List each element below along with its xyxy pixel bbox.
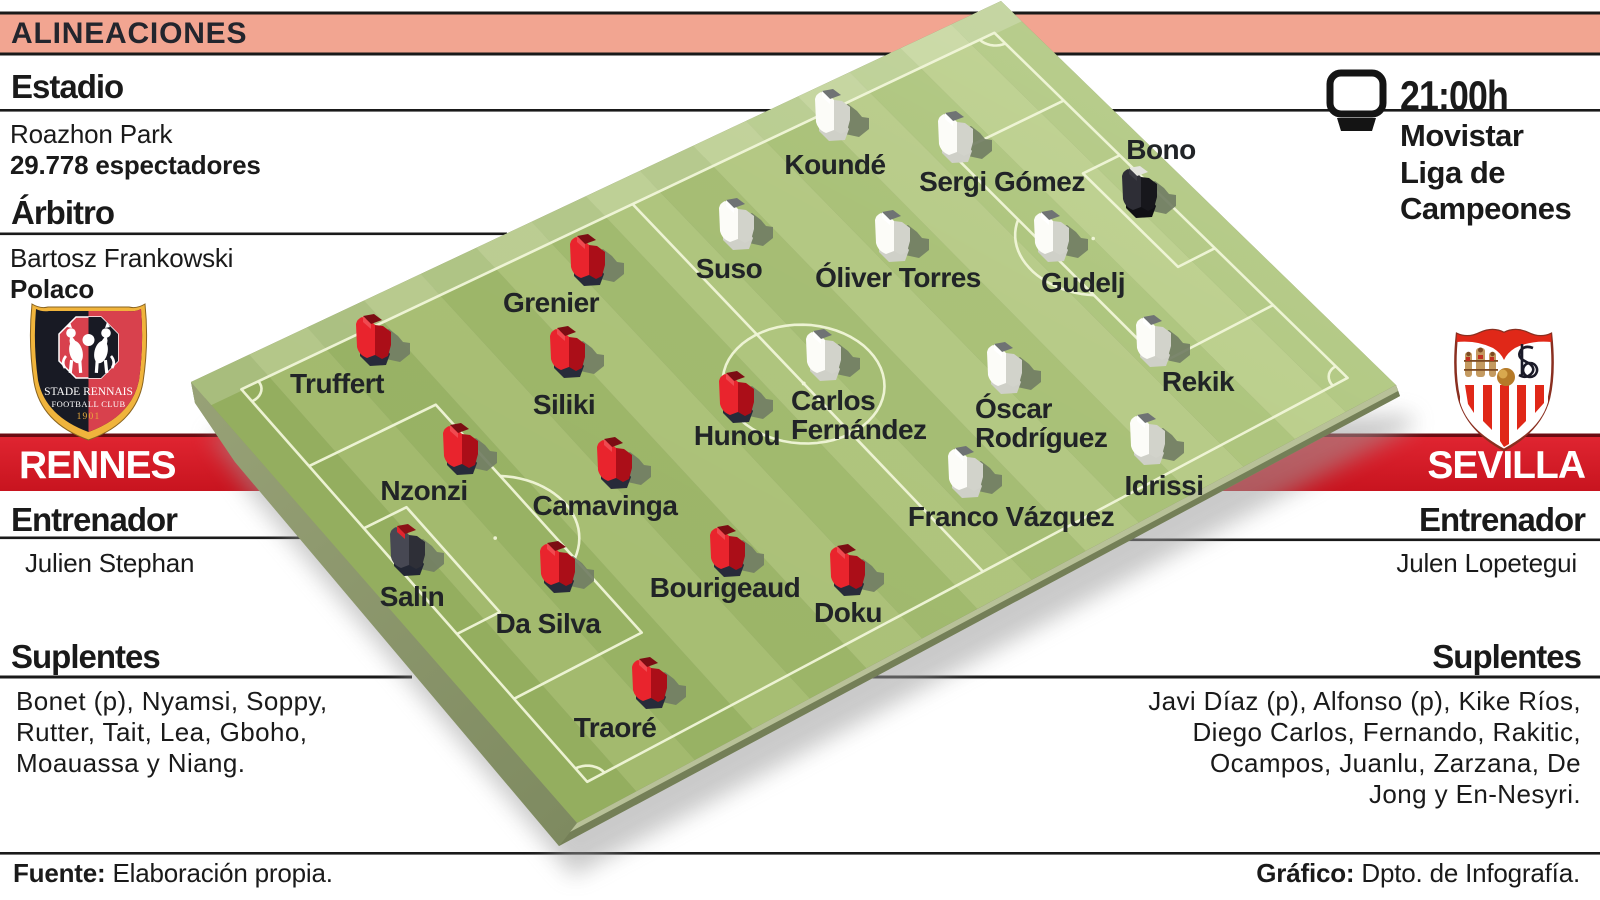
svg-text:STADE RENNAIS: STADE RENNAIS — [44, 386, 133, 398]
svg-text:FOOTBALL CLUB: FOOTBALL CLUB — [51, 399, 125, 409]
svg-text:1901: 1901 — [77, 412, 101, 422]
